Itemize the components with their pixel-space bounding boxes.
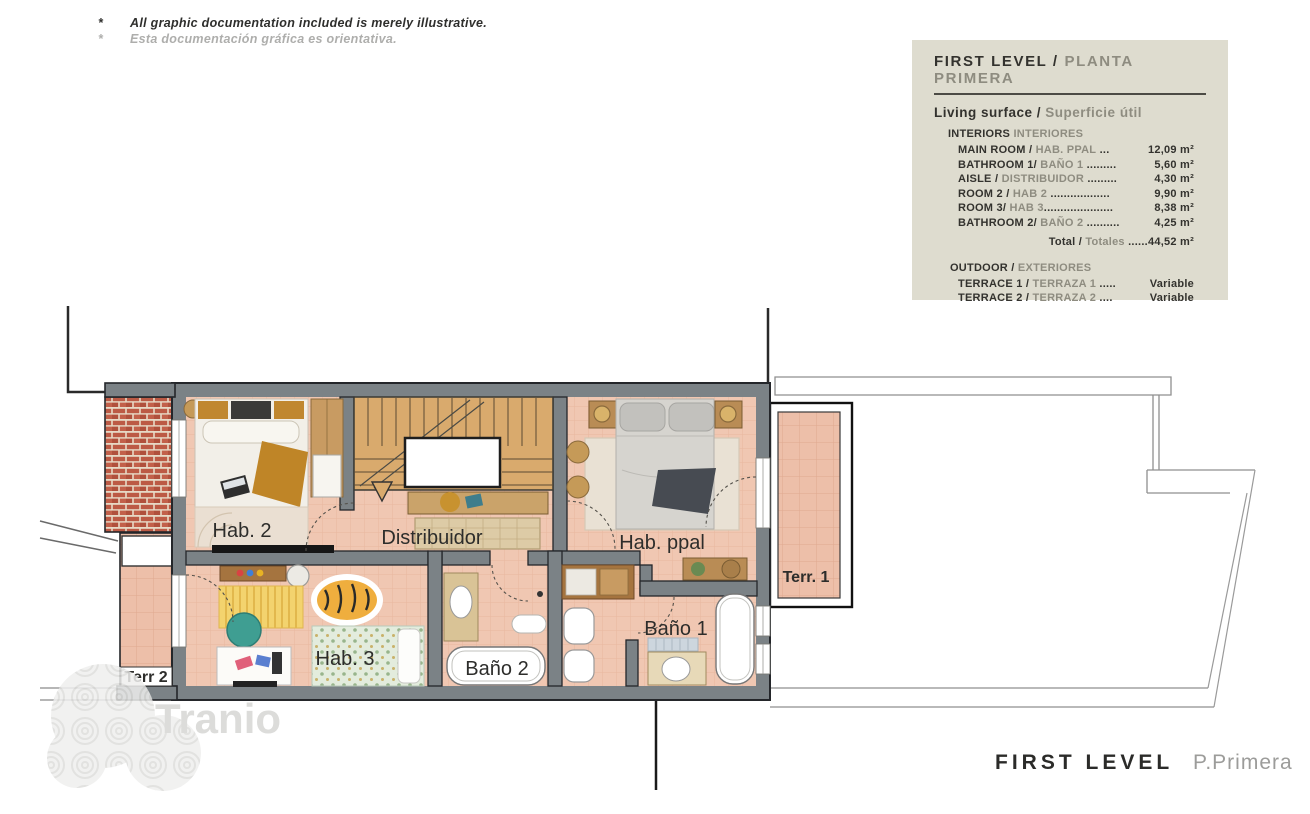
room-label-bano2: Baño 2 <box>465 658 528 680</box>
brick-terrace <box>105 397 172 532</box>
legend-total: Total / Totales ......44,52 m² <box>912 235 1194 250</box>
legend-subtitle-en: Living surface / <box>934 105 1041 120</box>
legend-subtitle: Living surface / Superficie útil <box>912 103 1228 128</box>
legend-panel: FIRST LEVEL / PLANTA PRIMERA Living surf… <box>912 40 1228 300</box>
legend-row: ROOM 3/ HAB 3.....................8,38 m… <box>958 201 1194 216</box>
legend-title: FIRST LEVEL / PLANTA PRIMERA <box>912 51 1228 93</box>
disclaimer: * All graphic documentation included is … <box>98 16 487 47</box>
interiors-rows: MAIN ROOM / HAB. PPAL ... 12,09 m² BATHR… <box>912 143 1194 231</box>
disclaimer-line-es: Esta documentación gráfica es orientativ… <box>130 32 397 48</box>
footer-title-en: FIRST LEVEL <box>995 751 1173 774</box>
outdoor-rows: TERRACE 1 / TERRAZA 1 ..... Variable TER… <box>912 277 1194 306</box>
room-label-terr1: Terr. 1 <box>783 569 830 586</box>
legend-row: BATHROOM 1/ BAÑO 1 ......... 5,60 m² <box>958 158 1194 173</box>
interiors-heading: INTERIORS INTERIORES <box>912 128 1228 143</box>
disclaimer-marker-2: * <box>98 32 130 48</box>
legend-row: TERRACE 1 / TERRAZA 1 ..... Variable <box>958 277 1194 292</box>
disclaimer-line-en: All graphic documentation included is me… <box>130 16 487 32</box>
legend-row: MAIN ROOM / HAB. PPAL ... 12,09 m² <box>958 143 1194 158</box>
legend-row: TERRACE 2 / TERRAZA 2 .... Variable <box>958 291 1194 306</box>
legend-row: ROOM 2 / HAB 2 .................. 9,90 m… <box>958 187 1194 202</box>
disclaimer-marker-1: * <box>98 16 130 32</box>
outdoor-section: OUTDOOR / EXTERIORES TERRACE 1 / TERRAZA… <box>912 262 1228 306</box>
legend-row: AISLE / DISTRIBUIDOR ......... 4,30 m² <box>958 172 1194 187</box>
footer-title-es: P.Primera <box>1193 751 1293 774</box>
terrace-2 <box>120 533 172 686</box>
legend-subtitle-es: Superficie útil <box>1045 105 1142 120</box>
staircase <box>354 397 553 501</box>
legend-row: BATHROOM 2/ BAÑO 2 .......... 4,25 m² <box>958 216 1194 231</box>
stair-void <box>405 438 500 487</box>
outdoor-heading: OUTDOOR / EXTERIORES <box>912 262 1228 277</box>
room-label-bano1: Baño 1 <box>644 618 707 640</box>
room-label-hab3: Hab. 3 <box>316 648 375 670</box>
legend-divider <box>934 93 1206 95</box>
room-label-hab2: Hab. 2 <box>213 520 272 542</box>
room-label-habppal: Hab. ppal <box>619 532 705 554</box>
footer-title: FIRST LEVEL P.Primera <box>995 751 1293 775</box>
watermark-text: Tranio <box>155 695 281 742</box>
legend-title-en: FIRST LEVEL / <box>934 53 1059 70</box>
room-label-distribuidor: Distribuidor <box>381 527 482 549</box>
